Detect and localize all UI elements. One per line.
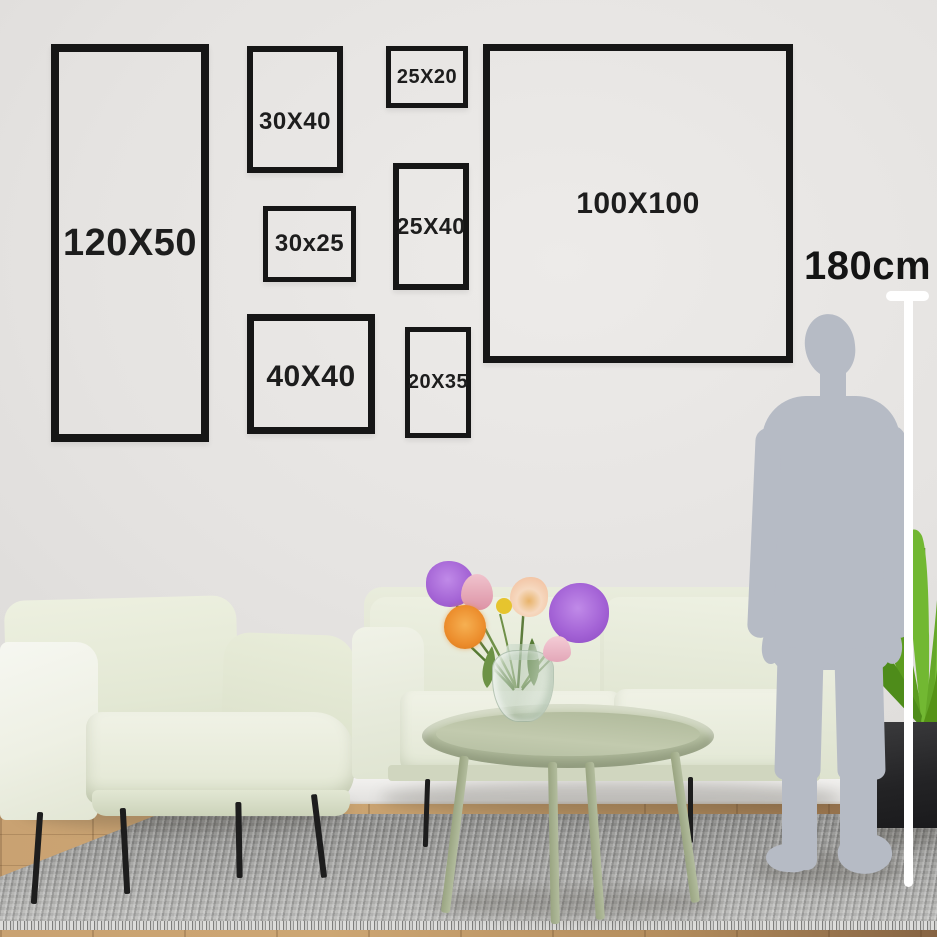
table-leg bbox=[548, 762, 560, 924]
size-label-20x35: 20X35 bbox=[408, 371, 468, 394]
size-label-40x40: 40X40 bbox=[266, 360, 355, 394]
size-frame-30x40: 30X40 bbox=[247, 46, 343, 173]
size-label-100x100: 100X100 bbox=[576, 187, 700, 221]
person-silhouette bbox=[752, 312, 906, 880]
reference-height-label: 180cm bbox=[804, 244, 931, 289]
table-tray-inset bbox=[436, 712, 700, 756]
size-label-25x40: 25X40 bbox=[397, 213, 466, 240]
armchair-leg bbox=[31, 812, 43, 904]
measure-line bbox=[904, 297, 913, 887]
size-frame-100x100: 100X100 bbox=[483, 44, 793, 363]
size-label-120x50: 120X50 bbox=[63, 222, 197, 265]
armchair-left-armrest bbox=[0, 642, 98, 820]
peach-poppy-flower bbox=[510, 577, 548, 617]
armchair bbox=[0, 594, 358, 914]
yellow-craspedia-flower bbox=[496, 598, 512, 614]
coffee-table bbox=[420, 694, 720, 924]
size-label-30x40: 30X40 bbox=[259, 108, 331, 136]
table-leg bbox=[441, 755, 469, 913]
table-leg bbox=[585, 762, 605, 920]
pink-tulip-bud bbox=[543, 636, 571, 662]
silhouette-foot bbox=[765, 842, 811, 873]
armchair-leg bbox=[120, 808, 130, 894]
table-leg bbox=[670, 751, 700, 903]
size-frame-25x40: 25X40 bbox=[393, 163, 469, 290]
size-label-30x25: 30x25 bbox=[275, 230, 344, 258]
glass-vase bbox=[492, 650, 554, 722]
size-frame-25x20: 25X20 bbox=[386, 46, 468, 108]
size-frame-30x25: 30x25 bbox=[263, 206, 356, 282]
silhouette-neck bbox=[820, 366, 846, 398]
poster-size-guide-scene: 120X50 30X40 25X20 30x25 25X40 40X40 20X… bbox=[0, 0, 937, 937]
size-frame-20x35: 20X35 bbox=[405, 327, 471, 438]
size-frame-120x50: 120X50 bbox=[51, 44, 209, 442]
purple-allium-flower bbox=[549, 583, 609, 643]
size-label-25x20: 25X20 bbox=[397, 66, 457, 89]
orange-pincushion-flower bbox=[444, 605, 486, 649]
size-frame-40x40: 40X40 bbox=[247, 314, 375, 434]
